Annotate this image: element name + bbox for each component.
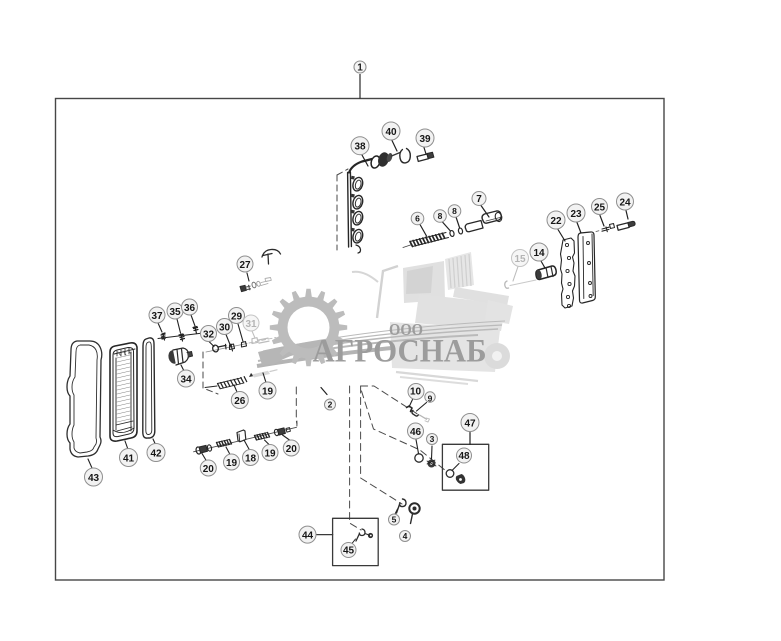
svg-text:26: 26: [234, 396, 246, 407]
svg-text:47: 47: [464, 419, 476, 430]
svg-text:48: 48: [458, 451, 470, 462]
svg-text:20: 20: [286, 444, 298, 455]
svg-text:40: 40: [385, 127, 397, 138]
svg-text:46: 46: [410, 427, 422, 438]
svg-text:29: 29: [231, 312, 243, 323]
svg-text:5: 5: [392, 515, 397, 525]
svg-text:9: 9: [428, 394, 433, 404]
svg-text:42: 42: [150, 449, 162, 460]
svg-text:6: 6: [415, 214, 420, 224]
svg-text:20: 20: [203, 464, 215, 475]
svg-text:14: 14: [533, 248, 545, 259]
svg-text:7: 7: [476, 194, 482, 205]
svg-text:37: 37: [151, 311, 163, 322]
svg-text:15: 15: [514, 254, 526, 265]
svg-text:43: 43: [88, 473, 100, 484]
svg-text:3: 3: [430, 434, 435, 444]
svg-text:8: 8: [438, 211, 443, 221]
svg-text:27: 27: [239, 260, 251, 271]
svg-text:38: 38: [354, 142, 366, 153]
svg-text:22: 22: [550, 216, 562, 227]
svg-text:24: 24: [619, 198, 631, 209]
svg-text:АГРОСНАБ: АГРОСНАБ: [313, 334, 487, 370]
svg-text:36: 36: [184, 303, 196, 314]
svg-text:4: 4: [403, 531, 408, 541]
svg-text:45: 45: [343, 546, 355, 557]
svg-text:19: 19: [262, 387, 274, 398]
svg-text:25: 25: [594, 203, 606, 214]
svg-text:2: 2: [328, 400, 333, 410]
svg-text:32: 32: [203, 330, 215, 341]
svg-text:41: 41: [123, 454, 135, 465]
svg-text:10: 10: [410, 387, 422, 398]
svg-text:44: 44: [302, 531, 314, 542]
svg-text:19: 19: [226, 458, 238, 469]
svg-text:30: 30: [219, 323, 231, 334]
svg-text:35: 35: [169, 307, 181, 318]
svg-text:23: 23: [570, 209, 582, 220]
svg-text:39: 39: [419, 134, 431, 145]
svg-text:18: 18: [245, 454, 257, 465]
svg-text:1: 1: [357, 63, 363, 74]
svg-text:31: 31: [245, 319, 257, 330]
svg-text:34: 34: [180, 375, 192, 386]
svg-text:8: 8: [452, 206, 457, 216]
svg-text:19: 19: [264, 449, 276, 460]
